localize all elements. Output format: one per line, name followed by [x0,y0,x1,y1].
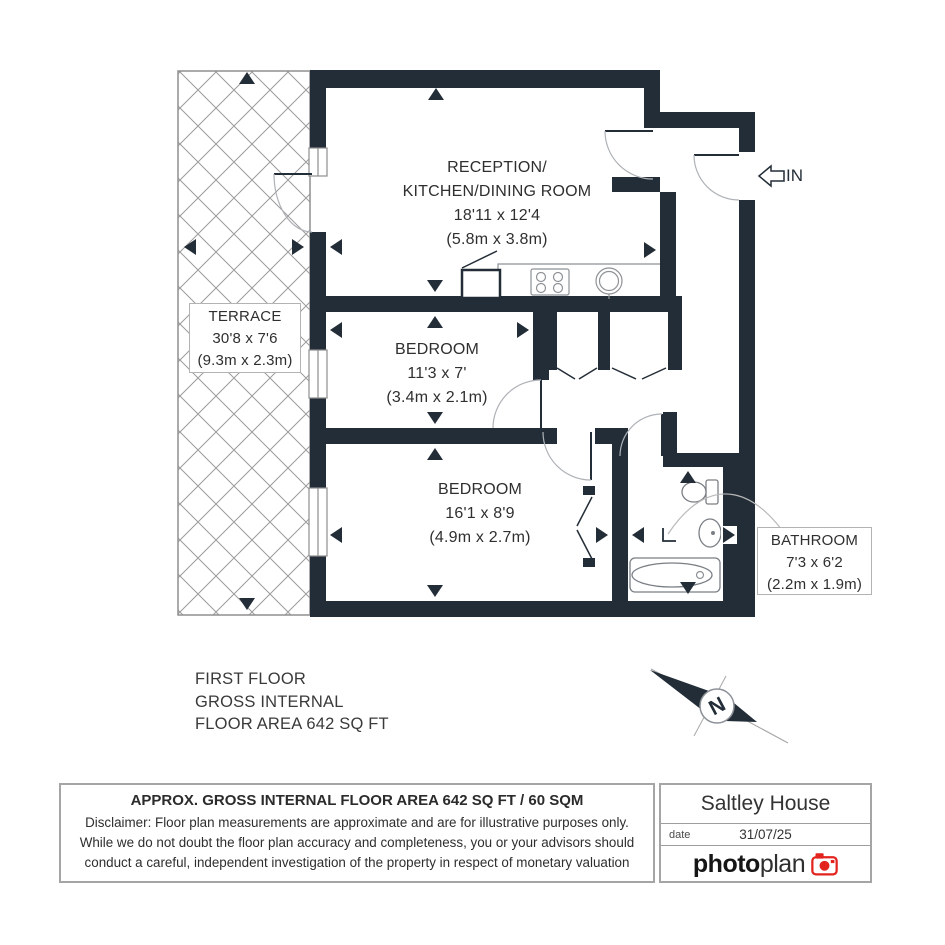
appliance [462,270,500,298]
room-name: BEDROOM [337,338,537,362]
room-dim-imperial: 16'1 x 8'9 [380,502,580,526]
windows [309,148,327,556]
room-label-terrace: TERRACE 30'8 x 7'6 (9.3m x 2.3m) [189,303,301,373]
room-label-bedroom-1: BEDROOM 11'3 x 7' (3.4m x 2.1m) [337,338,537,410]
floor-summary-line: FIRST FLOOR [195,668,475,691]
toilet-tank [706,480,718,504]
camera-icon [811,852,838,876]
room-dim-imperial: 30'8 x 7'6 [190,328,300,350]
gross-area-title: APPROX. GROSS INTERNAL FLOOR AREA 642 SQ… [61,792,653,809]
toilet-bowl [682,482,706,502]
disclaimer-text: Disclaimer: Floor plan measurements are … [61,813,653,873]
room-dim-imperial: 18'11 x 12'4 [357,204,637,228]
room-dim-metric: (3.4m x 2.1m) [337,386,537,410]
date-row: date 31/07/25 [661,824,870,846]
photoplan-logo: photoplan [661,846,870,882]
entrance-arrow-icon [759,166,784,186]
basin [699,519,721,547]
room-label-bathroom: BATHROOM 7'3 x 6'2 (2.2m x 1.9m) [757,527,872,595]
room-name: RECEPTION/ [357,156,637,180]
kitchen-fixtures [462,251,660,299]
room-name: KITCHEN/DINING ROOM [357,180,637,204]
date-value: 31/07/25 [661,827,870,842]
logo-text-photo: photo [693,850,760,878]
room-dim-metric: (4.9m x 2.7m) [380,526,580,550]
floor-summary: FIRST FLOOR GROSS INTERNAL FLOOR AREA 64… [195,668,475,736]
disclaimer-line: Disclaimer: Floor plan measurements are … [61,813,653,833]
room-label-reception: RECEPTION/ KITCHEN/DINING ROOM 18'11 x 1… [357,156,637,252]
logo-text-plan: plan [760,850,805,878]
compass-icon: N [650,669,788,743]
room-dim-metric: (5.8m x 3.8m) [357,228,637,252]
floor-summary-line: FLOOR AREA 642 SQ FT [195,713,475,736]
floor-summary-line: GROSS INTERNAL [195,691,475,714]
closet-bifold-doors [557,368,666,379]
room-dim-metric: (9.3m x 2.3m) [190,350,300,372]
disclaimer-line: While we do not doubt the floor plan acc… [61,833,653,853]
disclaimer-box: APPROX. GROSS INTERNAL FLOOR AREA 642 SQ… [59,783,655,883]
entrance-label: IN [786,166,803,186]
room-dim-imperial: 7'3 x 6'2 [758,552,871,574]
property-name: Saltley House [661,785,870,824]
disclaimer-line: conduct a careful, independent investiga… [61,853,653,873]
room-label-bedroom-2: BEDROOM 16'1 x 8'9 (4.9m x 2.7m) [380,478,580,550]
room-name: BATHROOM [758,530,871,552]
room-name: TERRACE [190,306,300,328]
property-info-box: Saltley House date 31/07/25 photoplan [659,783,872,883]
room-name: BEDROOM [380,478,580,502]
room-dim-metric: (2.2m x 1.9m) [758,574,871,596]
room-dim-imperial: 11'3 x 7' [337,362,537,386]
